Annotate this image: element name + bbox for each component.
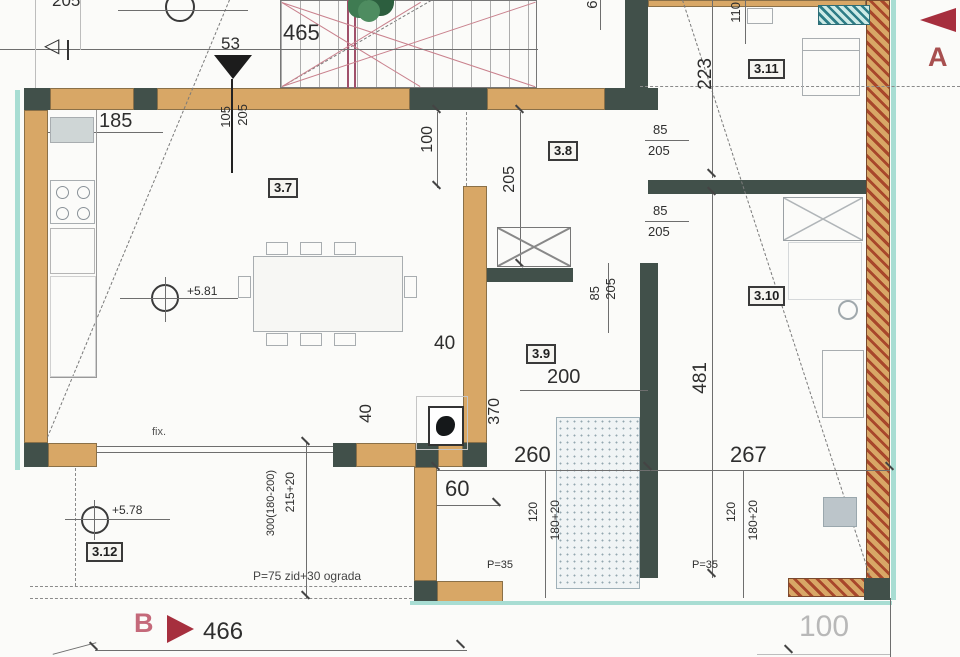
dim-label: 267	[730, 444, 767, 466]
room-label-3-9: 3.9	[526, 344, 556, 364]
level-marker-line	[120, 298, 238, 299]
floor-plan: +5.81 +5.78 ◁ A B 205 53 465 185 105 205…	[0, 0, 960, 657]
cabinet	[823, 497, 857, 527]
kitchen-counter-edge	[96, 110, 97, 378]
dim-line	[712, 194, 713, 578]
bed	[788, 242, 862, 300]
section-view-stem	[67, 40, 69, 60]
level-marker-line	[94, 500, 95, 540]
dim-line	[520, 390, 648, 391]
dim-label: 370	[487, 398, 503, 425]
wall-dark-horizontal	[648, 180, 868, 194]
nightstand	[747, 8, 773, 24]
dim-line	[645, 140, 689, 141]
dim-line	[545, 470, 546, 598]
radiator	[818, 5, 870, 25]
dim-label: 60	[445, 478, 469, 500]
dim-label: 85	[588, 286, 601, 300]
wall-top-segment	[50, 88, 134, 110]
dim-label: 185	[99, 111, 132, 131]
wall-top-segment	[487, 88, 605, 110]
wall-dark-block	[410, 88, 487, 110]
slope-arrow-icon	[214, 55, 252, 79]
chair	[266, 242, 288, 255]
wall-bottom-segment	[356, 443, 416, 467]
kitchen-cabinet	[50, 276, 96, 377]
dim-label: 120	[725, 502, 737, 522]
window-fix-line	[97, 452, 333, 453]
window-note: fix.	[152, 427, 166, 438]
wardrobe	[783, 197, 863, 241]
level-marker-line	[118, 10, 248, 11]
chair	[334, 242, 356, 255]
balcony-edge-bottom	[410, 601, 892, 605]
wall-dark-block	[333, 443, 356, 467]
section-a-label: A	[928, 44, 948, 71]
dim-label: 205	[502, 166, 518, 193]
kitchen-sink	[50, 117, 94, 143]
dim-label: 205	[236, 104, 249, 126]
dim-label: 110	[729, 2, 742, 23]
dim-label: 100	[420, 126, 436, 153]
dim-label: 481	[691, 362, 710, 394]
level-marker-line	[165, 277, 166, 322]
section-b-triangle-icon	[167, 615, 194, 643]
dim-label: P=35	[487, 560, 513, 571]
balcony-edge-right	[891, 0, 896, 600]
window-fix-line	[97, 446, 333, 447]
terrace-dashed-line	[75, 468, 76, 586]
door-leaf-dashed	[466, 112, 467, 186]
wall-bottom-brick	[788, 578, 868, 597]
dim-line-faint	[757, 654, 890, 655]
parapet-note: P=75 zid+30 ograda	[253, 570, 361, 582]
chair	[266, 333, 288, 346]
wall-terrace-vertical	[414, 467, 437, 581]
chair	[300, 242, 322, 255]
dim-label: 466	[203, 620, 243, 644]
bed-pillow	[802, 38, 860, 51]
section-a-triangle-icon	[920, 8, 956, 32]
wall-left	[24, 110, 48, 443]
wall-dark-block	[134, 88, 157, 110]
dim-label-faint: 100	[799, 612, 849, 642]
level-marker-icon	[165, 0, 195, 22]
wall-bottom-left	[48, 443, 97, 467]
dim-line	[743, 470, 744, 598]
dim-label: 200	[547, 367, 580, 387]
chair	[404, 276, 417, 298]
plant-icon	[346, 0, 398, 30]
axis-dashed-line	[640, 86, 960, 87]
dim-label: 205	[604, 278, 617, 300]
level-marker-icon	[81, 506, 109, 534]
dim-label: 180+20	[549, 500, 561, 540]
wall-dark-block	[414, 581, 437, 603]
kitchen-counter-edge	[50, 377, 97, 378]
chair	[300, 333, 322, 346]
wall-dark-block	[24, 88, 50, 110]
dim-label: 205	[52, 0, 80, 9]
dim-label: 40	[357, 404, 374, 423]
dim-line	[437, 112, 438, 188]
dim-label: 223	[696, 58, 715, 90]
chair	[334, 333, 356, 346]
kitchen-stove	[50, 180, 95, 224]
room-label-3-12: 3.12	[86, 542, 123, 562]
wall-top-segment	[157, 88, 410, 110]
wall-dark-vertical	[625, 0, 648, 110]
dim-label: 120	[527, 502, 539, 522]
installation-shaft	[497, 227, 571, 267]
room-label-3-10: 3.10	[748, 286, 785, 306]
stool	[838, 300, 858, 320]
kitchen-cabinet	[50, 228, 95, 274]
dim-label: 300(180-200)	[266, 470, 277, 536]
wall-right-brick	[866, 0, 890, 598]
room-label-3-7: 3.7	[268, 178, 298, 198]
wall-dark-vertical-long	[640, 263, 658, 578]
room-label-3-8: 3.8	[548, 141, 578, 161]
dining-table	[253, 256, 403, 332]
room-label-3-11: 3.11	[748, 59, 785, 79]
dim-label: 85	[653, 204, 667, 217]
terrace-parapet-dashed	[30, 598, 412, 599]
dim-line	[437, 505, 499, 506]
dim-label: 65	[585, 0, 600, 9]
dim-label: 465	[283, 22, 320, 44]
dim-line	[890, 598, 891, 657]
chair	[238, 276, 251, 298]
desk	[822, 350, 864, 418]
dim-tick	[784, 644, 793, 653]
level-marker-line	[65, 519, 170, 520]
dim-label: 40	[434, 334, 455, 353]
wall-dark-block	[24, 443, 48, 467]
wall-dark-corner	[864, 578, 890, 600]
loggia-tiled-floor	[556, 417, 640, 589]
balcony-edge-left	[15, 90, 20, 470]
dim-label: P=35	[692, 560, 718, 571]
dim-line	[95, 650, 467, 651]
dim-label: 105	[219, 106, 232, 128]
level-value: +5.81	[187, 285, 217, 297]
level-value: +5.78	[112, 504, 142, 516]
section-b-label: B	[134, 610, 154, 637]
dim-line	[645, 221, 689, 222]
dim-label: 85	[653, 123, 667, 136]
dim-label: 260	[514, 444, 551, 466]
dim-label: 180+20	[747, 500, 759, 540]
extension-line	[35, 0, 36, 88]
wall-dark-horizontal-small	[487, 268, 573, 282]
dim-line	[437, 470, 890, 471]
dim-label: 205	[648, 144, 670, 157]
dim-label: 53	[221, 35, 240, 52]
dim-label: 205	[648, 225, 670, 238]
wall-terrace-horizontal	[437, 581, 503, 603]
dim-label: 215+20	[284, 472, 296, 512]
dim-line	[745, 0, 746, 44]
dim-tick	[456, 639, 465, 648]
terrace-parapet-dashed	[30, 586, 412, 587]
section-view-icon: ◁	[44, 36, 59, 56]
